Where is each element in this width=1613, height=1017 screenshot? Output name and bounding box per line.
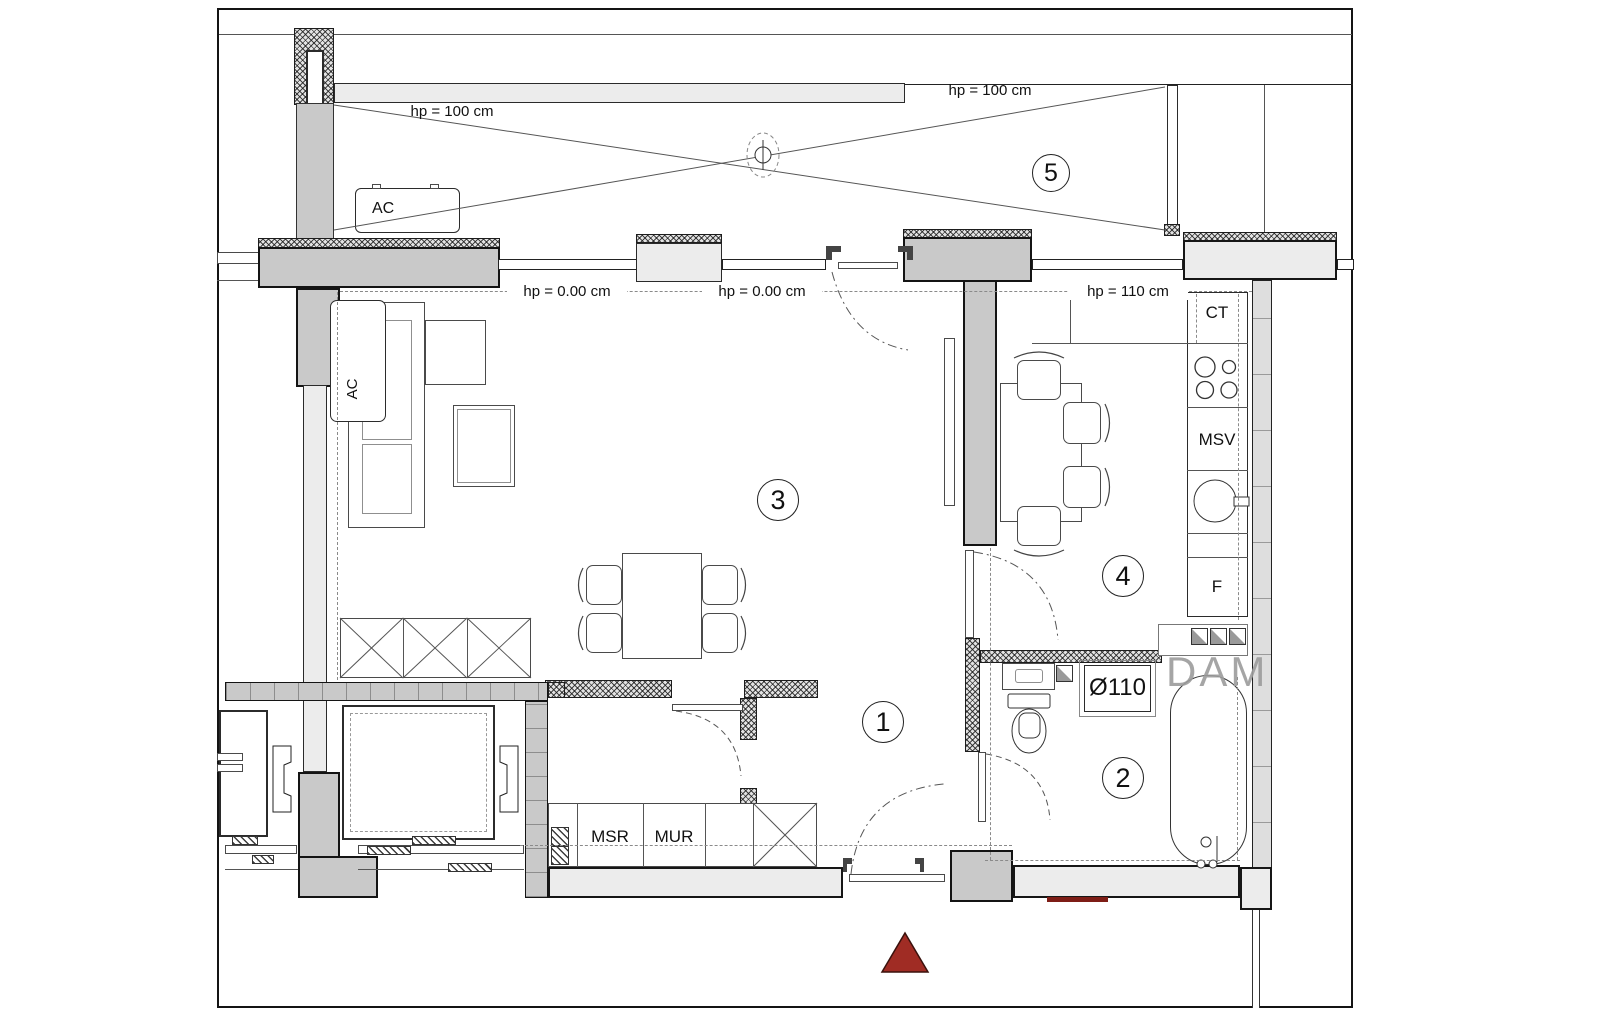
drain-diameter-label: Ø110 [1084, 672, 1151, 704]
bath-dash-west [990, 548, 991, 860]
toilet [1008, 694, 1050, 753]
ac-indoor-label: AC [343, 369, 361, 409]
room-label-hall: 1 [862, 701, 904, 743]
floor-plan-canvas: hp = 100 cm hp = 100 cm hp = 0.00 cm hp … [0, 0, 1613, 1017]
balcony-center-symbol [747, 133, 779, 177]
counter-depth-dash [1238, 294, 1239, 620]
entrance-marker-triangle [882, 933, 928, 972]
tub-edge-dash [1237, 677, 1238, 860]
kitchen-label-msv: MSV [1188, 430, 1246, 450]
room-label-bathroom: 2 [1102, 757, 1144, 799]
bathtub-fittings [1197, 836, 1217, 868]
elevator-counterweights [273, 746, 518, 812]
room-label-kitchen: 4 [1102, 555, 1144, 597]
kitchen-sink [1194, 480, 1249, 522]
watermark-text: DAM [1166, 648, 1268, 696]
hp-label-kitchen: hp = 110 cm [1068, 282, 1188, 300]
kitchen-label-ct: CT [1188, 303, 1246, 323]
cabinet-label-msr: MSR [578, 827, 642, 847]
cabinet-label-mur: MUR [644, 827, 704, 847]
plan-linework [0, 0, 1613, 1017]
kitchen-label-f: F [1188, 577, 1246, 597]
hp-label-living-right: hp = 0.00 cm [702, 282, 822, 300]
door-swing-arcs [676, 272, 1058, 874]
door-frame-glyphs [826, 246, 924, 872]
hp-label-living-left: hp = 0.00 cm [507, 282, 627, 300]
hp-label-balcony-left: hp = 100 cm [392, 102, 512, 120]
stove-burners [1195, 357, 1237, 399]
ac-outdoor-label: AC [372, 200, 394, 218]
bath-dash-south [985, 860, 1240, 861]
boundary-dash-west [337, 292, 338, 680]
chair-back-arcs [579, 352, 1110, 650]
room-label-living: 3 [757, 479, 799, 521]
room-label-balcony: 5 [1032, 154, 1070, 192]
hp-label-balcony-right: hp = 100 cm [930, 81, 1050, 99]
